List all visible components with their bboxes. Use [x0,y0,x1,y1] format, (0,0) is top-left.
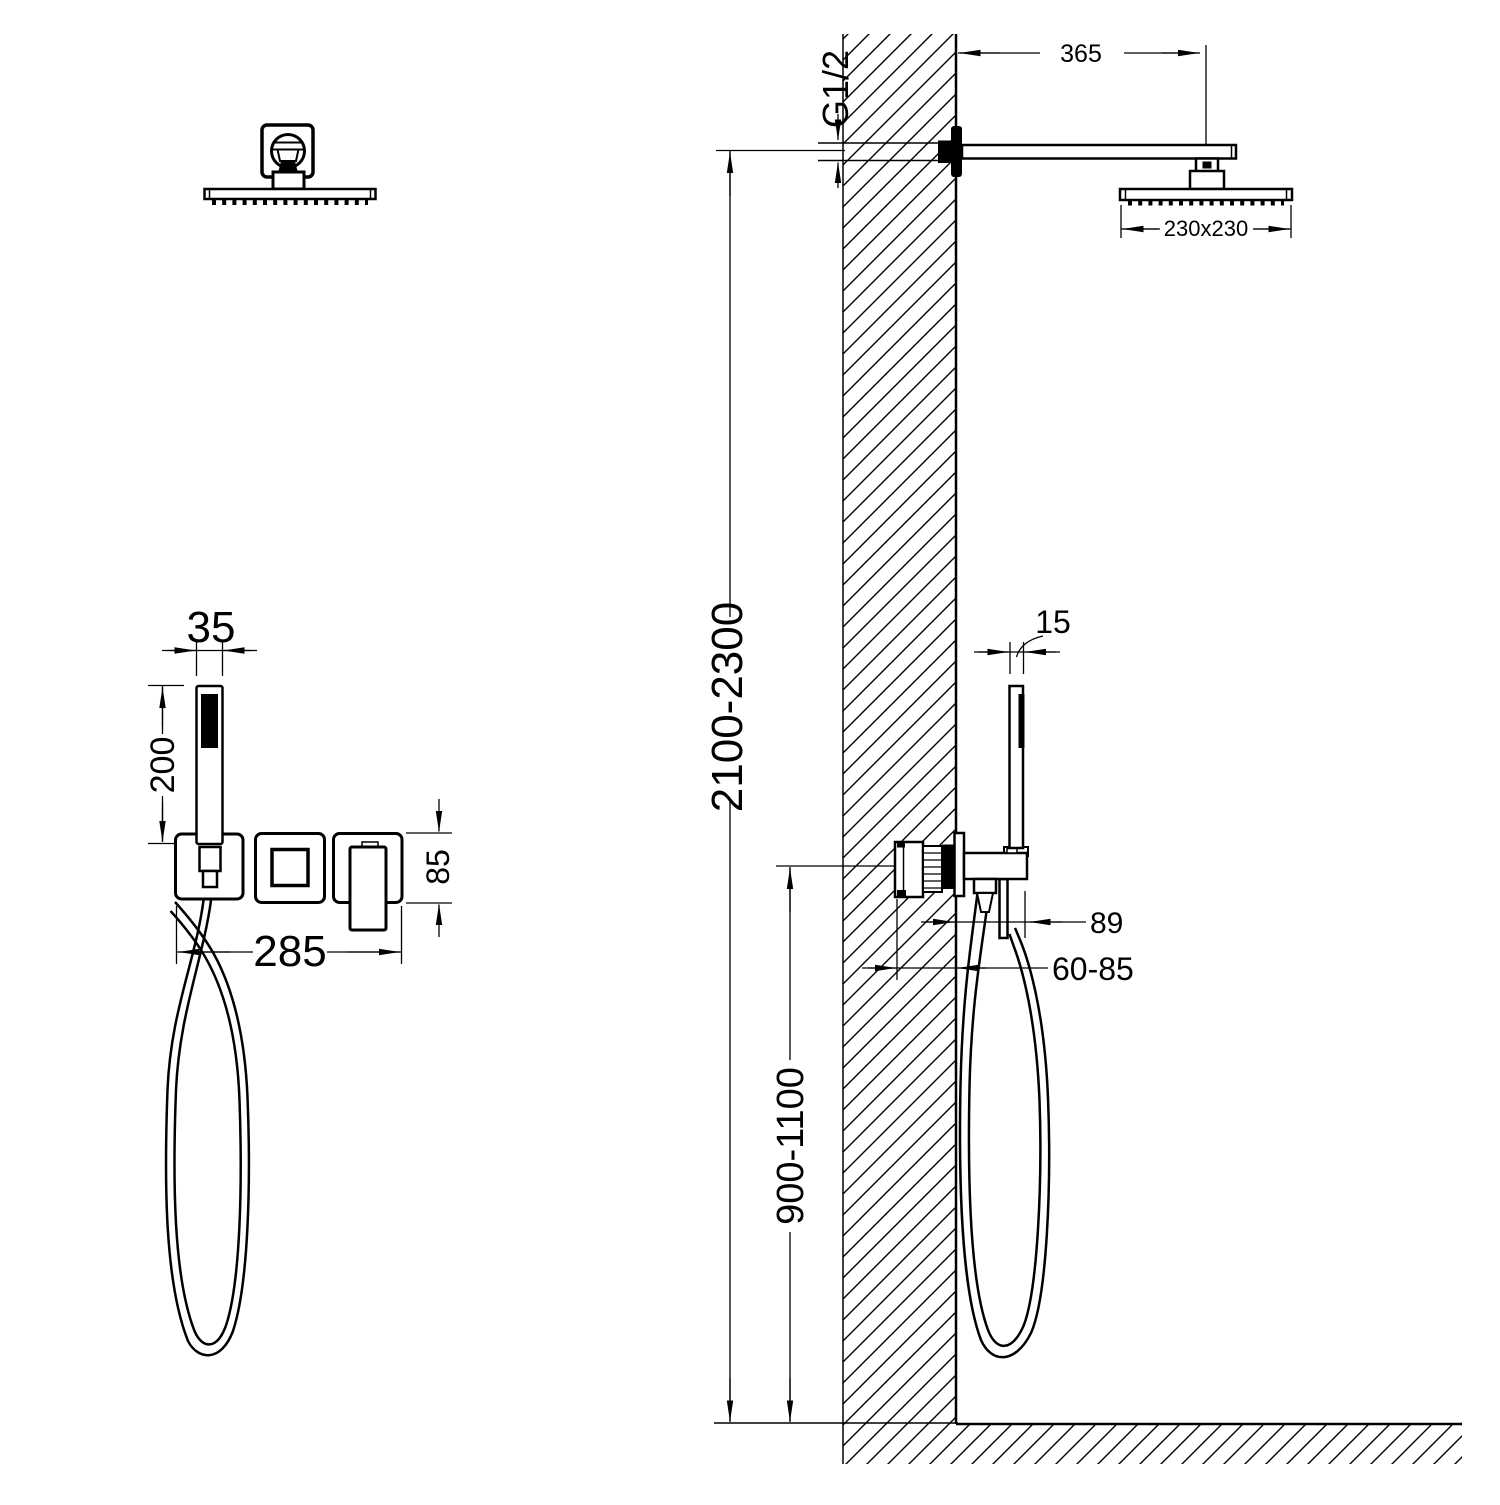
dim-label-285: 285 [253,927,326,976]
side-view: G1/2 2100-2300 900-1100 365 [703,34,1462,1464]
shower-hose-side [960,893,1049,1357]
dim-2100-2300: 2100-2300 [703,151,845,1423]
shower-installation-drawing: G1/2 2100-2300 900-1100 365 [0,0,1500,1500]
hose-nut-side [974,879,996,893]
head-plate-front [205,189,376,199]
hand-shower-face-side [1019,694,1025,748]
spout-top-detail [1007,849,1017,854]
dim-15: 15 [974,604,1071,674]
hose-nut-front-lower [203,871,217,887]
dim-200: 200 [144,686,184,844]
dim-label-35: 35 [187,603,236,652]
dim-label-230x230: 230x230 [1164,216,1248,241]
dim-label-900-1100: 900-1100 [770,1067,812,1225]
dim-label-60-85: 60-85 [1052,951,1134,987]
valve-threads [923,846,942,892]
dim-230x230: 230x230 [1121,205,1291,241]
hand-shower-front [197,686,223,887]
hand-shower-side [1004,686,1028,856]
ball-joint-lower [1190,171,1224,189]
rain-head-side [1120,189,1292,200]
roughin-tick-top [897,843,905,848]
shower-hose-front [166,887,249,1355]
head-connector-front [273,172,304,189]
shower-arm [962,145,1236,159]
diverter-button [272,850,308,886]
dim-label-365: 365 [1060,40,1102,68]
hose-taper-side [977,893,993,912]
dim-label-15: 15 [1035,604,1071,640]
wall-hatch [843,34,1462,1464]
dim-label-g12: G1/2 [815,50,856,128]
dim-label-89: 89 [1090,907,1123,940]
shower-arm-side [938,126,1292,203]
arm-wall-connector [938,141,962,164]
roughin-tick-bottom [897,890,906,897]
ball-nut-front [278,150,299,162]
hand-shower-face-front [201,694,218,748]
hose-nut-front-upper [200,847,221,871]
rain-shower-head-front [205,125,376,203]
dim-label-2100-2300: 2100-2300 [703,602,752,812]
dim-365: 365 [958,40,1206,158]
roughin-box [895,842,923,897]
dim-label-200: 200 [144,737,182,794]
mixer-lever-side [1000,879,1008,938]
mixer-lever-front [350,847,386,930]
valve-wall-plate-side [955,833,965,896]
spout-body-side [964,853,1027,879]
dim-85: 85 [406,799,456,937]
technical-drawing-page: G1/2 2100-2300 900-1100 365 [0,0,1500,1500]
dim-label-85: 85 [420,849,456,885]
ball-joint-pin [1203,162,1212,169]
dim-35: 35 [162,603,257,676]
wall-and-floor-section [714,34,1462,1464]
front-view: 35 200 [144,125,456,1355]
